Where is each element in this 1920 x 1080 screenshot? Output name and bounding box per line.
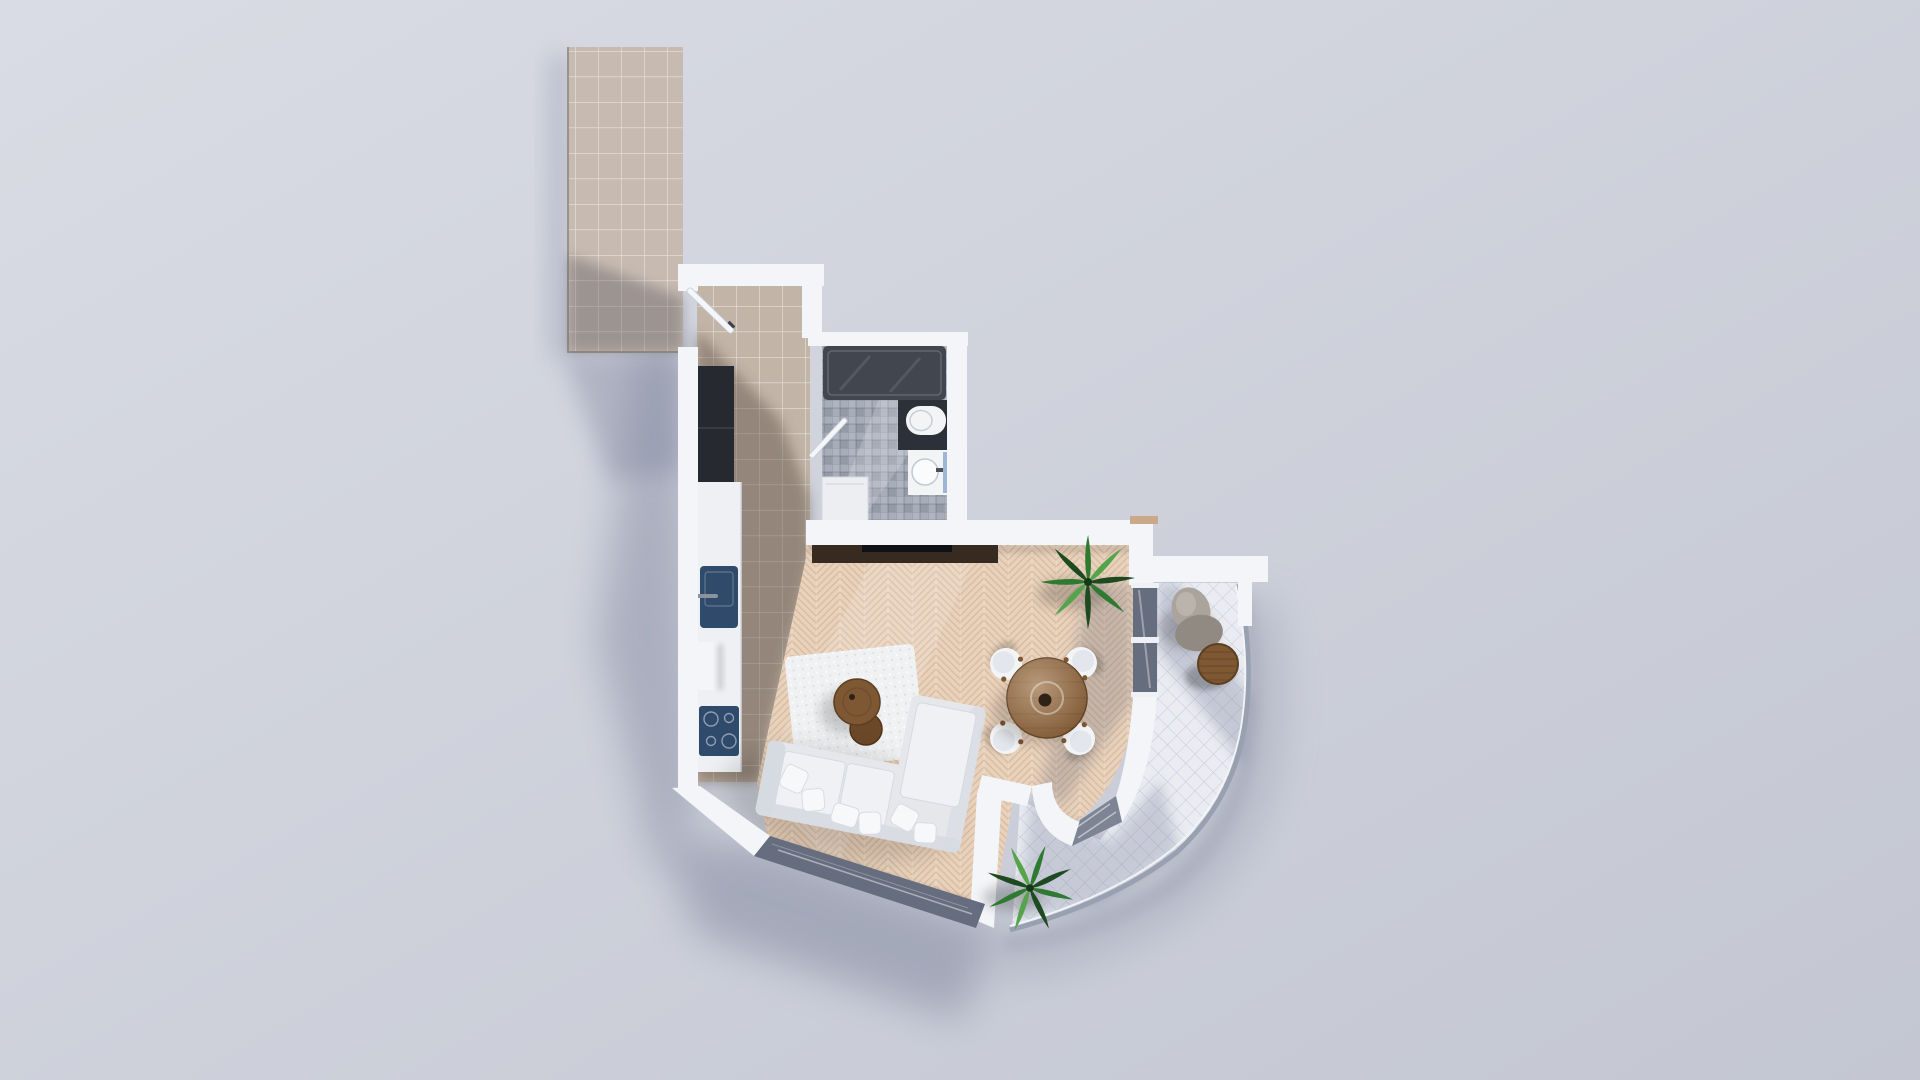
wall-south-band bbox=[806, 520, 1136, 545]
dining-table-bowl bbox=[1039, 694, 1052, 707]
toilet bbox=[906, 406, 946, 435]
balcony-plant-center bbox=[1026, 884, 1034, 892]
room-kitchen bbox=[693, 366, 741, 772]
wall-balcony-top bbox=[1152, 556, 1268, 582]
window-east-mullion bbox=[1131, 583, 1159, 588]
sink-basin bbox=[912, 459, 938, 485]
coffee-table-large bbox=[834, 679, 880, 725]
room-corridor bbox=[568, 47, 683, 352]
indoor-plant-center bbox=[1084, 578, 1092, 586]
window-east-mullion bbox=[1131, 692, 1159, 697]
wall-step bbox=[802, 286, 822, 338]
coffee-table-vase bbox=[849, 694, 855, 700]
beanbag-highlight bbox=[1176, 592, 1196, 616]
wall-step-right bbox=[1129, 523, 1153, 585]
wall-bath-top bbox=[808, 332, 968, 346]
wall-bath-right bbox=[947, 332, 967, 522]
kitchen-column-shadow bbox=[717, 644, 723, 690]
floor-plan-render bbox=[0, 0, 1920, 1080]
wall-vent bbox=[1130, 516, 1158, 524]
room-bathroom bbox=[809, 346, 949, 522]
wall-left bbox=[678, 347, 698, 792]
wall-balcony-post bbox=[1238, 580, 1252, 626]
floor-plan-svg bbox=[0, 0, 1920, 1080]
wall-entry-top bbox=[678, 264, 824, 286]
window-east-mullion bbox=[1131, 637, 1159, 643]
tv bbox=[862, 545, 952, 552]
cooktop bbox=[699, 706, 739, 756]
shower-tray bbox=[823, 346, 946, 400]
tv-wall bbox=[812, 542, 998, 563]
hall-wardrobe bbox=[697, 366, 734, 483]
